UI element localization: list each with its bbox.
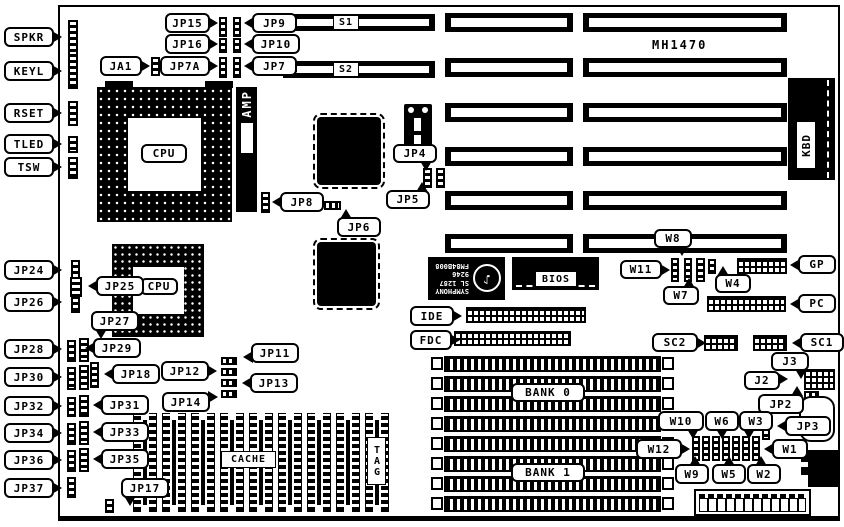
label-jp10-text: JP10 — [261, 38, 292, 51]
callout-tail — [717, 266, 729, 276]
w-row-jumper-6 — [742, 436, 750, 461]
callout-tail — [420, 161, 432, 171]
callout-tail — [52, 65, 62, 77]
label-w3-text: W3 — [748, 415, 763, 428]
label-jp15: JP15 — [165, 13, 210, 33]
label-jp17-text: JP17 — [130, 482, 161, 495]
label-keyl: KEYL — [4, 61, 54, 81]
label-jp6-text: JP6 — [348, 221, 371, 234]
label-w4: W4 — [715, 274, 751, 293]
slot-mid-1 — [445, 13, 573, 32]
slot-long-4 — [583, 147, 787, 166]
jp17-jumper — [105, 499, 114, 513]
sc1-header — [753, 335, 787, 351]
label-jp37: JP37 — [4, 478, 54, 498]
jp10-jumper — [233, 38, 241, 53]
amp-connector-text: AMP — [240, 90, 254, 118]
callout-tail — [93, 399, 103, 411]
label-w10: W10 — [658, 411, 704, 431]
label-jp35: JP35 — [101, 449, 149, 469]
label-w9: W9 — [675, 464, 709, 484]
callout-tail — [208, 17, 218, 29]
chip-print: ♪SYMPHONYSL 12879246FM84B008 — [430, 259, 503, 298]
slot-mid-2 — [445, 58, 573, 77]
callout-tail — [140, 60, 150, 72]
amp-notch — [241, 123, 253, 153]
label-jp8-text: JP8 — [291, 196, 314, 209]
label-jp31-text: JP31 — [110, 399, 141, 412]
label-jp5: JP5 — [386, 190, 430, 209]
label-w8-text: W8 — [665, 232, 680, 245]
simm-clip — [662, 357, 674, 370]
slot-inner — [589, 18, 781, 27]
s2-label: S2 — [333, 62, 359, 77]
callout-tail — [790, 298, 800, 310]
label-w12-text: W12 — [648, 443, 671, 456]
callout-tail — [93, 453, 103, 465]
slot-s2-segment — [283, 61, 435, 78]
jp26-header — [71, 297, 80, 313]
simm-clip — [431, 457, 443, 470]
jp31-jumper — [79, 395, 89, 417]
callout-tail — [790, 259, 800, 271]
dip-bar — [201, 420, 205, 505]
tag-label-text: TAG — [372, 445, 382, 478]
label-jp12-text: JP12 — [170, 365, 201, 378]
slot-mid-5 — [445, 191, 573, 210]
slot-mid-3 — [445, 103, 573, 122]
dip-bar — [346, 420, 350, 505]
slot-long-1 — [583, 13, 787, 32]
label-pc: PC — [798, 294, 836, 313]
callout-tail — [52, 371, 62, 383]
label-rset: RSET — [4, 103, 54, 123]
label-jp32-text: JP32 — [14, 400, 45, 413]
slot-inner — [589, 63, 781, 72]
bios-label-text: BIOS — [542, 274, 570, 285]
label-pc-text: PC — [809, 297, 824, 310]
pc-header — [707, 296, 786, 312]
s1-label: S1 — [333, 15, 359, 30]
label-ja1: JA1 — [100, 56, 142, 76]
label-w3: W3 — [739, 411, 773, 431]
label-jp14: JP14 — [162, 392, 210, 412]
callout-tail — [52, 31, 62, 43]
chip-text-line: 9246 — [435, 270, 469, 278]
jp12-jumper — [221, 368, 237, 376]
label-sc1-text: SC1 — [811, 336, 834, 349]
label-gp-text: GP — [809, 258, 824, 271]
label-jp35-text: JP35 — [110, 453, 141, 466]
jp34-jumper — [67, 423, 76, 445]
w4-jumper — [708, 259, 716, 274]
label-tsw: TSW — [4, 157, 54, 177]
label-jp11-text: JP11 — [260, 347, 291, 360]
label-jp25: JP25 — [96, 276, 144, 296]
label-jp26-text: JP26 — [14, 296, 45, 309]
label-jp34: JP34 — [4, 423, 54, 443]
simm-clip — [431, 417, 443, 430]
jp6-jumper — [324, 201, 341, 210]
slot-inner — [589, 152, 781, 161]
label-w6-text: W6 — [714, 415, 729, 428]
label-w6: W6 — [705, 411, 739, 431]
callout-tail — [208, 38, 218, 50]
simm-clip — [662, 497, 674, 510]
jp7-jumper — [233, 57, 241, 78]
fdc-header — [454, 331, 571, 346]
jp11-jumper — [221, 357, 237, 365]
label-w11-text: W11 — [630, 263, 653, 276]
simm-clip — [662, 397, 674, 410]
label-j2-text: J2 — [754, 374, 769, 387]
jp8-jumper — [261, 192, 270, 213]
cache-chip — [336, 413, 360, 512]
label-w2-text: W2 — [756, 468, 771, 481]
power-tab — [801, 467, 809, 475]
jp28-jumper — [67, 340, 76, 362]
label-jp5-text: JP5 — [397, 193, 420, 206]
label-jp8: JP8 — [280, 192, 324, 212]
s2-label-text: S2 — [339, 64, 353, 75]
cache-label: CACHE — [221, 451, 276, 468]
pin-squares — [699, 498, 806, 512]
j2-j3-header — [804, 369, 835, 390]
label-jp30: JP30 — [4, 367, 54, 387]
label-fdc-text: FDC — [420, 334, 443, 347]
callout-tail — [88, 280, 98, 292]
label-jp29-text: JP29 — [102, 342, 133, 355]
label-w5: W5 — [712, 464, 746, 484]
callout-tail — [242, 377, 252, 389]
slot-long-3 — [583, 103, 787, 122]
w-row-jumper-2 — [702, 436, 710, 461]
callout-tail — [243, 351, 253, 363]
callout-tail — [272, 196, 282, 208]
label-jp3-text: JP3 — [797, 420, 820, 433]
mount-hole — [422, 107, 428, 113]
slot-inner — [451, 152, 567, 161]
slot-inner — [451, 196, 567, 205]
cache-label-text: CACHE — [231, 454, 266, 465]
jp7a-jumper — [219, 57, 227, 78]
cpu2-label: CPU — [140, 278, 178, 295]
label-jp9-text: JP9 — [263, 17, 286, 30]
label-jp16: JP16 — [165, 34, 210, 54]
callout-tail — [85, 342, 95, 354]
label-w1-text: W1 — [782, 443, 797, 456]
chip-qfp-1 — [317, 117, 381, 185]
label-rset-text: RSET — [14, 107, 45, 120]
jp27-jumper — [79, 365, 89, 390]
jp15-jumper — [219, 17, 227, 37]
simm-clip — [431, 357, 443, 370]
label-w9-text: W9 — [684, 468, 699, 481]
s1-label-text: S1 — [339, 17, 353, 28]
label-jp7a: JP7A — [160, 56, 210, 76]
cache-chip — [191, 413, 215, 512]
bank1-label: BANK 1 — [511, 463, 585, 482]
slot-inner — [451, 239, 567, 248]
callout-tail — [792, 337, 802, 349]
callout-tail — [52, 427, 62, 439]
callout-tail — [244, 38, 254, 50]
label-keyl-text: KEYL — [14, 65, 45, 78]
label-jp27: JP27 — [91, 311, 139, 331]
kbd-label: KBD — [796, 121, 816, 169]
jp14-jumper — [221, 390, 237, 398]
callout-tail — [450, 334, 460, 346]
chip-text-line: FM84B008 — [435, 262, 469, 270]
simm-socket — [444, 356, 661, 372]
power-connector-edge — [808, 450, 838, 487]
power-connector — [694, 489, 811, 516]
bank1-label-text: BANK 1 — [525, 466, 571, 479]
simm-clip — [431, 437, 443, 450]
w-row-jumper-3 — [712, 436, 720, 461]
callout-tail — [93, 426, 103, 438]
tsw-header — [68, 157, 78, 179]
bracket-slot — [414, 118, 421, 131]
label-jp2-text: JP2 — [770, 398, 793, 411]
jp5-jumper — [436, 168, 445, 188]
callout-tail — [687, 429, 699, 439]
jp33-jumper — [79, 421, 89, 445]
rset-header — [68, 101, 78, 126]
label-w2: W2 — [747, 464, 781, 484]
label-w10-text: W10 — [670, 415, 693, 428]
label-jp7: JP7 — [252, 56, 297, 76]
label-jp18-text: JP18 — [121, 368, 152, 381]
jp32-jumper — [67, 397, 76, 417]
label-w1: W1 — [772, 439, 808, 459]
jp13-jumper — [221, 379, 237, 387]
simm-clip — [431, 477, 443, 490]
callout-tail — [689, 456, 701, 466]
callout-tail — [244, 17, 254, 29]
slot-mid-4 — [445, 147, 573, 166]
label-jp18: JP18 — [112, 364, 160, 384]
label-j3-text: J3 — [782, 355, 797, 368]
label-ja1-text: JA1 — [110, 60, 133, 73]
label-jp13: JP13 — [250, 373, 298, 393]
callout-tail — [791, 386, 803, 396]
label-jp14-text: JP14 — [171, 396, 202, 409]
kbd-label-text: KBD — [800, 134, 813, 157]
callout-tail — [676, 246, 688, 256]
chip-text-line: SYMPHONY — [435, 287, 469, 295]
label-jp34-text: JP34 — [14, 427, 45, 440]
label-jp37-text: JP37 — [14, 482, 45, 495]
cache-chip — [307, 413, 331, 512]
label-j2: J2 — [744, 371, 780, 390]
mount-hole — [408, 107, 414, 113]
callout-tail — [660, 264, 670, 276]
bank0-label: BANK 0 — [511, 383, 585, 402]
slot-inner — [289, 66, 429, 73]
label-jp24: JP24 — [4, 260, 54, 280]
callout-tail — [777, 420, 787, 432]
label-jp7-text: JP7 — [263, 60, 286, 73]
cpu1-label-text: CPU — [153, 147, 176, 160]
label-jp13-text: JP13 — [259, 377, 290, 390]
callout-tail — [696, 337, 706, 349]
callout-tail — [723, 456, 735, 466]
callout-tail — [52, 296, 62, 308]
label-jp28: JP28 — [4, 339, 54, 359]
symphony-logo-icon: ♪ — [473, 265, 501, 293]
label-ide-text: IDE — [421, 310, 444, 323]
sc2-header — [704, 335, 738, 351]
callout-tail — [208, 391, 218, 403]
callout-tail — [244, 60, 254, 72]
simm-clip — [662, 477, 674, 490]
label-jp36-text: JP36 — [14, 454, 45, 467]
callout-tail — [755, 456, 767, 466]
callout-tail — [208, 60, 218, 72]
label-w12: W12 — [636, 439, 682, 459]
label-jp24-text: JP24 — [14, 264, 45, 277]
simm-clip — [431, 497, 443, 510]
label-jp6: JP6 — [337, 217, 381, 237]
callout-tail — [52, 264, 62, 276]
label-spkr: SPKR — [4, 27, 54, 47]
jp30-jumper — [67, 367, 76, 390]
label-ide: IDE — [410, 306, 454, 326]
label-tled: TLED — [4, 134, 54, 154]
callout-tail — [207, 365, 217, 377]
chip-text-line: SL 1287 — [435, 279, 469, 287]
label-jp33-text: JP33 — [110, 426, 141, 439]
slot-long-5 — [583, 191, 787, 210]
label-w8: W8 — [654, 229, 692, 248]
jp35-jumper — [79, 448, 89, 472]
label-w7-text: W7 — [673, 289, 688, 302]
label-w4-text: W4 — [725, 277, 740, 290]
w11-jumper — [671, 258, 679, 282]
label-jp10: JP10 — [252, 34, 300, 54]
slot-inner — [589, 108, 781, 117]
callout-tail — [683, 278, 695, 288]
label-w7: W7 — [663, 286, 699, 305]
callout-tail — [52, 482, 62, 494]
tled-header — [68, 136, 78, 153]
label-tled-text: TLED — [14, 138, 45, 151]
callout-tail — [743, 429, 755, 439]
label-jp12: JP12 — [161, 361, 209, 381]
dip-bar — [288, 420, 292, 505]
cpu2-label-text: CPU — [148, 280, 171, 293]
kbd-dashed-line — [827, 80, 829, 178]
label-sc2: SC2 — [652, 333, 698, 352]
board-name-text: MH1470 — [652, 38, 707, 52]
label-w11: W11 — [620, 260, 662, 279]
bios-label: BIOS — [535, 271, 577, 287]
simm-socket — [444, 416, 661, 432]
slot-inner — [451, 108, 567, 117]
callout-tail — [52, 138, 62, 150]
callout-tail — [795, 369, 807, 379]
label-jp11: JP11 — [251, 343, 299, 363]
jp25-jumper — [70, 277, 82, 297]
label-jp30-text: JP30 — [14, 371, 45, 384]
label-jp9: JP9 — [252, 13, 297, 33]
symphony-chipset: ♪SYMPHONYSL 12879246FM84B008 — [428, 257, 505, 300]
w7-jumper — [696, 258, 705, 282]
motherboard-diagram: AMP♪SYMPHONYSL 12879246FM84B008S1S2CACHE… — [0, 0, 844, 527]
slot-inner — [451, 63, 567, 72]
keyl-header — [68, 55, 78, 89]
label-jp4: JP4 — [393, 144, 437, 163]
slot-inner — [289, 19, 429, 26]
label-jp28-text: JP28 — [14, 343, 45, 356]
callout-tail — [716, 429, 728, 439]
cpu1-label: CPU — [141, 144, 187, 163]
bank0-label-text: BANK 0 — [525, 386, 571, 399]
jp16-jumper — [219, 38, 227, 53]
spkr-header — [68, 20, 78, 56]
label-jp25-text: JP25 — [105, 280, 136, 293]
label-jp15-text: JP15 — [172, 17, 203, 30]
slot-inner — [451, 18, 567, 27]
callout-tail — [52, 161, 62, 173]
callout-tail — [52, 343, 62, 355]
callout-tail — [52, 107, 62, 119]
amp-connector: AMP — [236, 87, 257, 212]
label-spkr-text: SPKR — [14, 31, 45, 44]
label-gp: GP — [798, 255, 836, 274]
label-jp26: JP26 — [4, 292, 54, 312]
label-jp4-text: JP4 — [404, 147, 427, 160]
cache-chip — [278, 413, 302, 512]
callout-tail — [452, 310, 462, 322]
label-jp3: JP3 — [785, 416, 831, 436]
chip-text: SYMPHONYSL 12879246FM84B008 — [435, 262, 469, 296]
simm-clip — [431, 377, 443, 390]
callout-tail — [52, 454, 62, 466]
dip-bar — [172, 420, 176, 505]
simm-socket — [444, 436, 661, 452]
label-sc1: SC1 — [800, 333, 844, 352]
dip-bar — [317, 420, 321, 505]
simm-clip — [662, 377, 674, 390]
simm-clip — [431, 397, 443, 410]
callout-tail — [124, 496, 136, 506]
label-jp7a-text: JP7A — [170, 60, 201, 73]
jp9-jumper — [233, 17, 241, 37]
label-jp32: JP32 — [4, 396, 54, 416]
jp36-jumper — [67, 450, 76, 472]
gp-header — [737, 258, 787, 274]
callout-tail — [764, 443, 774, 455]
callout-tail — [416, 182, 428, 192]
label-jp31: JP31 — [101, 395, 149, 415]
label-fdc: FDC — [410, 330, 452, 350]
slot-long-2 — [583, 58, 787, 77]
callout-tail — [104, 368, 114, 380]
label-j3: J3 — [771, 352, 809, 371]
label-jp27-text: JP27 — [100, 315, 131, 328]
label-sc2-text: SC2 — [664, 336, 687, 349]
label-w5-text: W5 — [721, 468, 736, 481]
slot-s1-segment — [283, 14, 435, 31]
callout-tail — [680, 443, 690, 455]
ja1-jumper — [151, 57, 160, 76]
slot-inner — [589, 196, 781, 205]
label-jp16-text: JP16 — [172, 38, 203, 51]
jp18-jumper — [90, 362, 99, 388]
callout-tail — [340, 209, 352, 219]
